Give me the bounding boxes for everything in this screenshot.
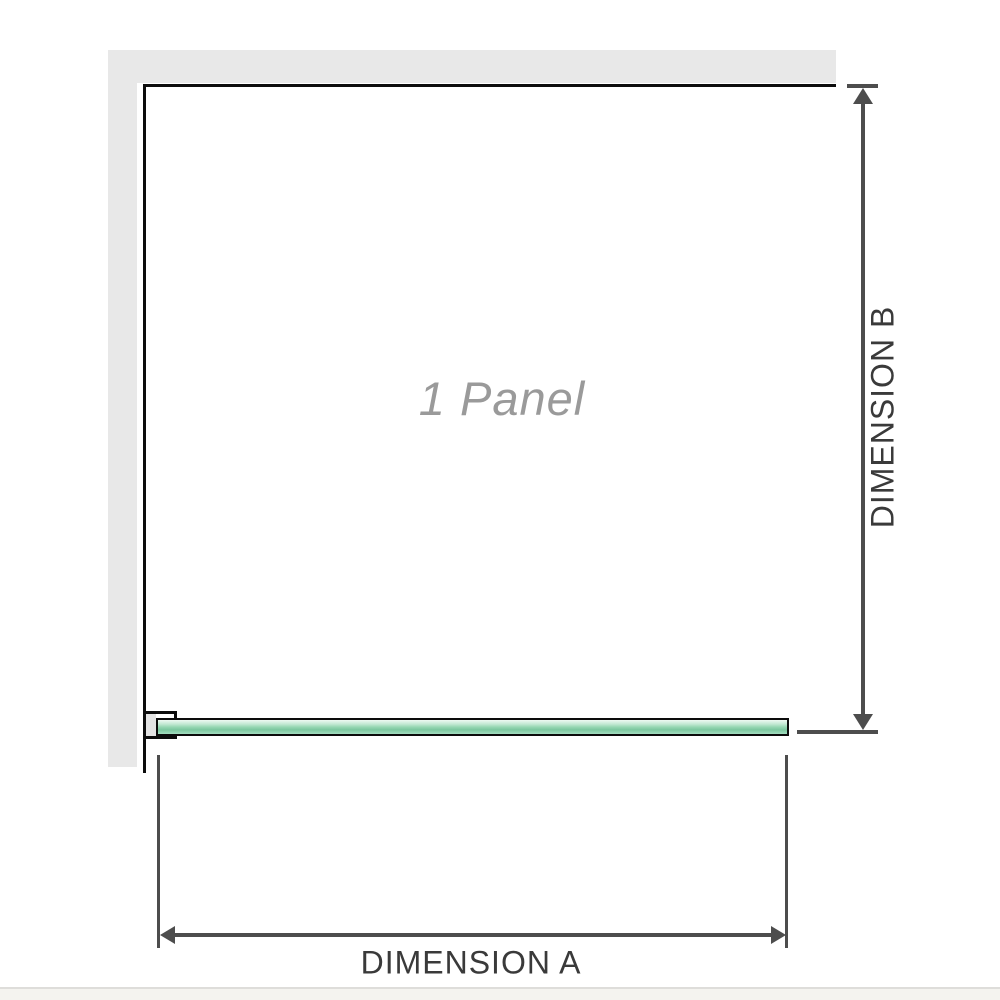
arrow-down-icon xyxy=(853,714,873,730)
dimension-a-line xyxy=(174,933,772,937)
arrow-left-icon xyxy=(160,926,175,944)
enclosure-top-edge xyxy=(143,84,836,87)
dimension-b-bottom-tick xyxy=(797,730,878,734)
dimension-a-left-extension-line xyxy=(157,755,160,948)
arrow-up-icon xyxy=(853,88,873,104)
dimension-a-right-extension-line xyxy=(785,755,788,948)
wall-top xyxy=(108,50,836,83)
wall-left xyxy=(108,50,137,767)
dimension-a-label: DIMENSION A xyxy=(361,945,582,982)
enclosure-left-edge xyxy=(143,84,146,773)
dimension-b-label: DIMENSION B xyxy=(865,306,902,529)
bracket-mount-block xyxy=(146,714,156,736)
glass-panel xyxy=(156,718,789,736)
bottom-band xyxy=(0,987,1000,1000)
panel-count-label: 1 Panel xyxy=(377,372,627,426)
arrow-right-icon xyxy=(771,926,786,944)
shower-panel-diagram: 1 Panel DIMENSION B DIMENSION A xyxy=(0,0,1000,1000)
